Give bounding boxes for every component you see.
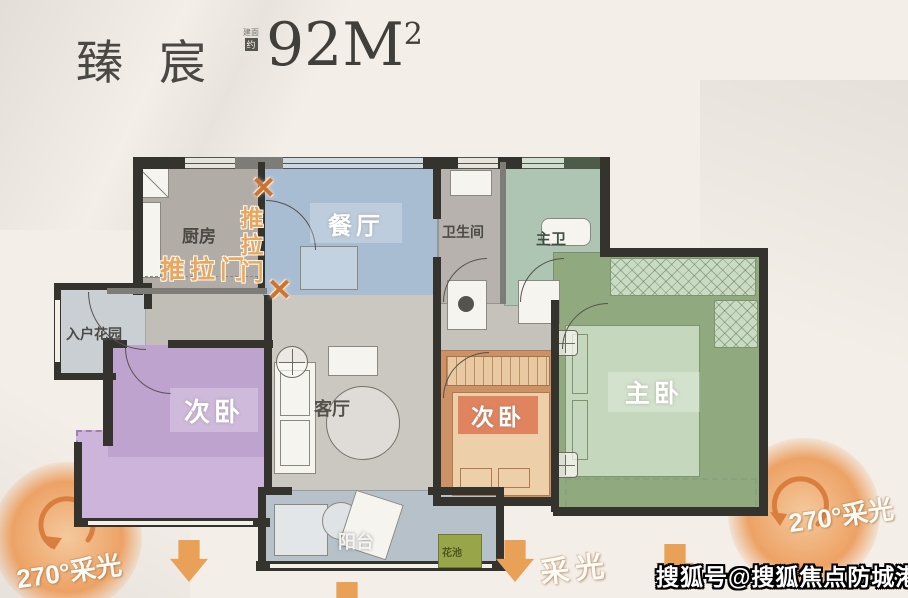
master-closet xyxy=(610,258,756,296)
window-seat xyxy=(714,300,758,348)
wall xyxy=(168,340,273,348)
label-dining: 餐厅 xyxy=(310,203,402,243)
sofa-cushion xyxy=(280,420,310,466)
dining-table xyxy=(300,246,358,290)
label-bedroom-mid: 次卧 xyxy=(458,396,538,434)
shower xyxy=(450,170,492,196)
wall xyxy=(551,300,559,512)
window xyxy=(458,157,498,169)
stamp-seal: 约 xyxy=(245,38,258,51)
label-master-bath: 主卫 xyxy=(536,228,566,249)
wall xyxy=(74,442,82,525)
down-arrow-icon xyxy=(170,540,208,582)
wall xyxy=(496,487,504,571)
sliding-door-label-vertical: 推拉门 xyxy=(233,206,267,287)
window xyxy=(185,157,235,169)
wall xyxy=(258,487,292,495)
area-stamp: 建面 约 xyxy=(243,29,259,51)
wall xyxy=(600,157,610,256)
window xyxy=(88,521,253,525)
floorplan-page: 臻宸 建面 约 92M2 xyxy=(0,0,908,598)
pillow xyxy=(460,468,492,488)
page-title: 臻宸 xyxy=(76,24,242,93)
wall xyxy=(428,487,504,495)
window-dining xyxy=(283,157,423,169)
x-mark-icon: ✕ xyxy=(251,174,276,204)
x-mark-icon: ✕ xyxy=(267,276,292,306)
wall xyxy=(433,300,441,505)
wall-bath-divider xyxy=(500,162,506,304)
watermark: 搜狐号@搜狐焦点防城港站 xyxy=(656,558,908,592)
wall xyxy=(600,248,768,257)
label-living: 客厅 xyxy=(314,395,350,421)
label-flower-bed: 花池 xyxy=(442,544,462,559)
label-kitchen: 厨房 xyxy=(182,222,216,247)
wall xyxy=(103,338,113,446)
pillow xyxy=(572,400,588,460)
area-value: 92M2 xyxy=(266,10,423,80)
coffee-table xyxy=(328,346,378,376)
balcony-basin xyxy=(274,504,328,556)
window xyxy=(55,300,60,362)
wall xyxy=(133,157,143,295)
wall xyxy=(433,257,441,305)
label-entry-garden: 入户花园 xyxy=(66,324,122,344)
wall xyxy=(258,487,266,571)
area-superscript: 2 xyxy=(404,17,423,52)
label-bathroom: 卫生间 xyxy=(442,222,484,242)
light-bottom-label: 采光 xyxy=(538,542,612,591)
wall xyxy=(759,248,768,516)
wall xyxy=(553,507,768,516)
stamp-text: 建面 xyxy=(243,29,259,37)
window xyxy=(522,157,564,169)
pillow xyxy=(498,468,530,488)
down-arrow-icon xyxy=(328,582,366,598)
master-bay-dashed xyxy=(565,478,757,506)
label-bedroom-left: 次卧 xyxy=(170,388,258,432)
compass-icon xyxy=(276,346,308,378)
wall xyxy=(264,295,272,495)
wall xyxy=(433,157,441,219)
label-master-bedroom: 主卧 xyxy=(608,372,700,412)
label-balcony: 阳台 xyxy=(338,528,374,554)
